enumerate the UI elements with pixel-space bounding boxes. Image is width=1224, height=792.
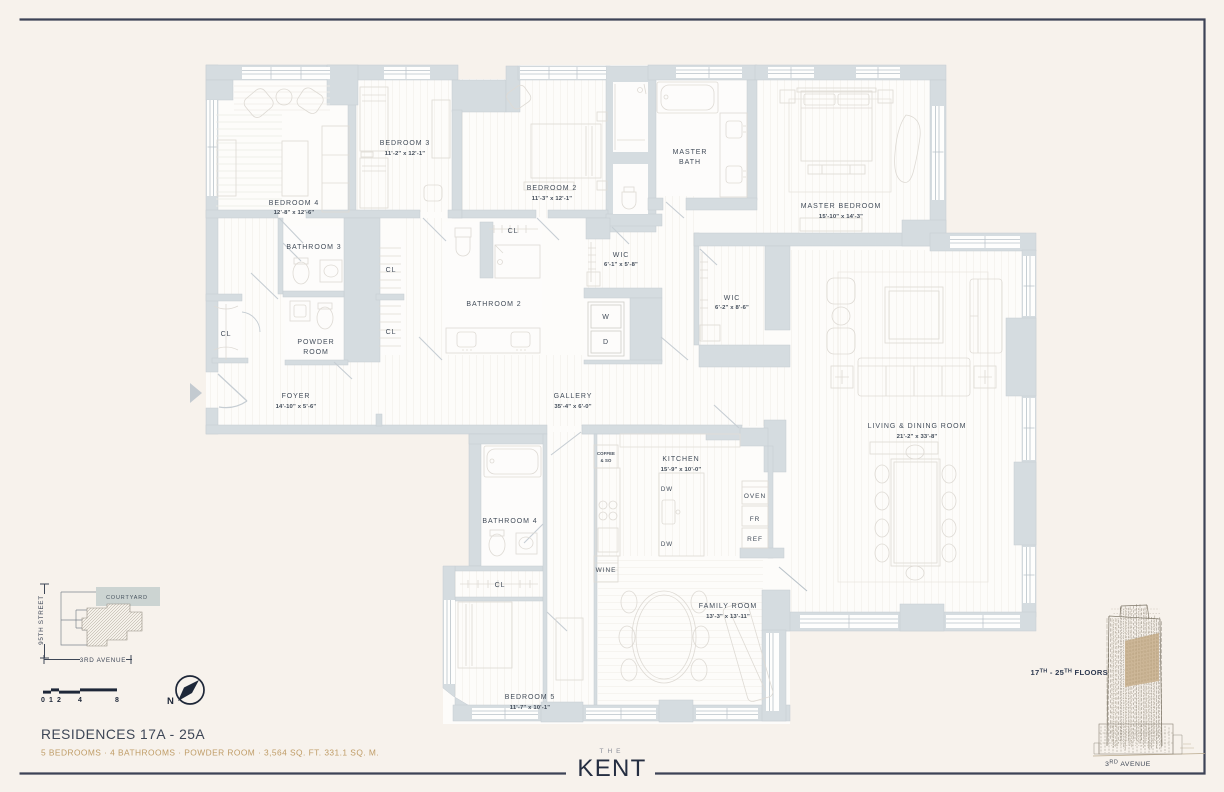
svg-text:KENT: KENT bbox=[577, 755, 646, 782]
svg-text:FOYER: FOYER bbox=[282, 393, 311, 400]
svg-text:OVEN: OVEN bbox=[744, 493, 766, 500]
svg-text:95TH STREET: 95TH STREET bbox=[38, 595, 45, 645]
svg-text:REF: REF bbox=[747, 536, 763, 543]
svg-text:BATHROOM 3: BATHROOM 3 bbox=[286, 244, 341, 251]
svg-text:6'-2" x 8'-6": 6'-2" x 8'-6" bbox=[715, 305, 749, 311]
svg-text:DW: DW bbox=[661, 541, 673, 548]
svg-text:BATH: BATH bbox=[679, 159, 701, 166]
svg-text:14'-10" x 5'-6": 14'-10" x 5'-6" bbox=[276, 404, 317, 410]
svg-text:D: D bbox=[603, 339, 609, 346]
svg-text:CL: CL bbox=[386, 267, 397, 274]
svg-text:MASTER: MASTER bbox=[673, 149, 708, 156]
svg-text:MASTER BEDROOM: MASTER BEDROOM bbox=[801, 203, 882, 210]
svg-text:POWDER: POWDER bbox=[297, 339, 334, 346]
svg-text:CL: CL bbox=[221, 331, 232, 338]
svg-text:CL: CL bbox=[508, 228, 519, 235]
svg-text:COFFEE: COFFEE bbox=[597, 451, 615, 456]
svg-text:BEDROOM 3: BEDROOM 3 bbox=[380, 140, 431, 147]
svg-text:BATHROOM 2: BATHROOM 2 bbox=[466, 301, 521, 308]
svg-text:1: 1 bbox=[49, 697, 53, 704]
svg-text:6'-1" x 5'-8": 6'-1" x 5'-8" bbox=[604, 262, 638, 268]
svg-text:BATHROOM 4: BATHROOM 4 bbox=[482, 518, 537, 525]
svg-text:11'-2" x 12'-1": 11'-2" x 12'-1" bbox=[385, 151, 425, 157]
svg-text:THE: THE bbox=[600, 748, 625, 755]
svg-text:WIC: WIC bbox=[613, 252, 629, 259]
svg-text:BEDROOM 4: BEDROOM 4 bbox=[269, 200, 320, 207]
svg-text:RESIDENCES 17A - 25A: RESIDENCES 17A - 25A bbox=[41, 727, 205, 742]
svg-text:BEDROOM 2: BEDROOM 2 bbox=[527, 185, 578, 192]
svg-text:ROOM: ROOM bbox=[303, 349, 329, 356]
svg-text:BEDROOM 5: BEDROOM 5 bbox=[505, 694, 556, 701]
svg-text:KITCHEN: KITCHEN bbox=[662, 456, 699, 463]
svg-text:W: W bbox=[602, 314, 610, 321]
svg-text:& SO: & SO bbox=[601, 458, 612, 463]
svg-text:DW: DW bbox=[661, 486, 673, 493]
svg-text:21'-2" x 33'-8": 21'-2" x 33'-8" bbox=[897, 434, 938, 440]
svg-text:15'-10" x 14'-3": 15'-10" x 14'-3" bbox=[819, 214, 863, 220]
svg-text:4: 4 bbox=[78, 697, 82, 704]
svg-text:CL: CL bbox=[386, 329, 397, 336]
svg-text:2: 2 bbox=[57, 697, 61, 704]
svg-text:35'-4" x 6'-0": 35'-4" x 6'-0" bbox=[554, 404, 591, 410]
svg-text:COURTYARD: COURTYARD bbox=[106, 595, 148, 601]
svg-text:FAMILY ROOM: FAMILY ROOM bbox=[699, 603, 757, 610]
svg-text:N: N bbox=[167, 696, 174, 707]
svg-text:11'-7" x 10'-1": 11'-7" x 10'-1" bbox=[510, 705, 550, 711]
svg-text:LIVING & DINING ROOM: LIVING & DINING ROOM bbox=[868, 423, 967, 430]
svg-text:11'-3" x 12'-1": 11'-3" x 12'-1" bbox=[532, 196, 572, 202]
svg-text:13'-3" x 13'-11": 13'-3" x 13'-11" bbox=[706, 614, 750, 620]
svg-text:15'-9" x 10'-0": 15'-9" x 10'-0" bbox=[661, 467, 702, 473]
svg-text:12'-8" x 12'-6": 12'-8" x 12'-6" bbox=[274, 210, 315, 216]
svg-text:WINE: WINE bbox=[596, 567, 617, 574]
svg-text:8: 8 bbox=[115, 697, 119, 704]
svg-text:3RD AVENUE: 3RD AVENUE bbox=[80, 657, 126, 664]
svg-text:0: 0 bbox=[41, 697, 45, 704]
svg-text:FR: FR bbox=[750, 516, 761, 523]
svg-text:CL: CL bbox=[495, 582, 506, 589]
svg-text:GALLERY: GALLERY bbox=[554, 393, 593, 400]
svg-text:5 BEDROOMS · 4 BATHROOMS · POW: 5 BEDROOMS · 4 BATHROOMS · POWDER ROOM ·… bbox=[41, 748, 379, 758]
svg-text:WIC: WIC bbox=[724, 295, 740, 302]
